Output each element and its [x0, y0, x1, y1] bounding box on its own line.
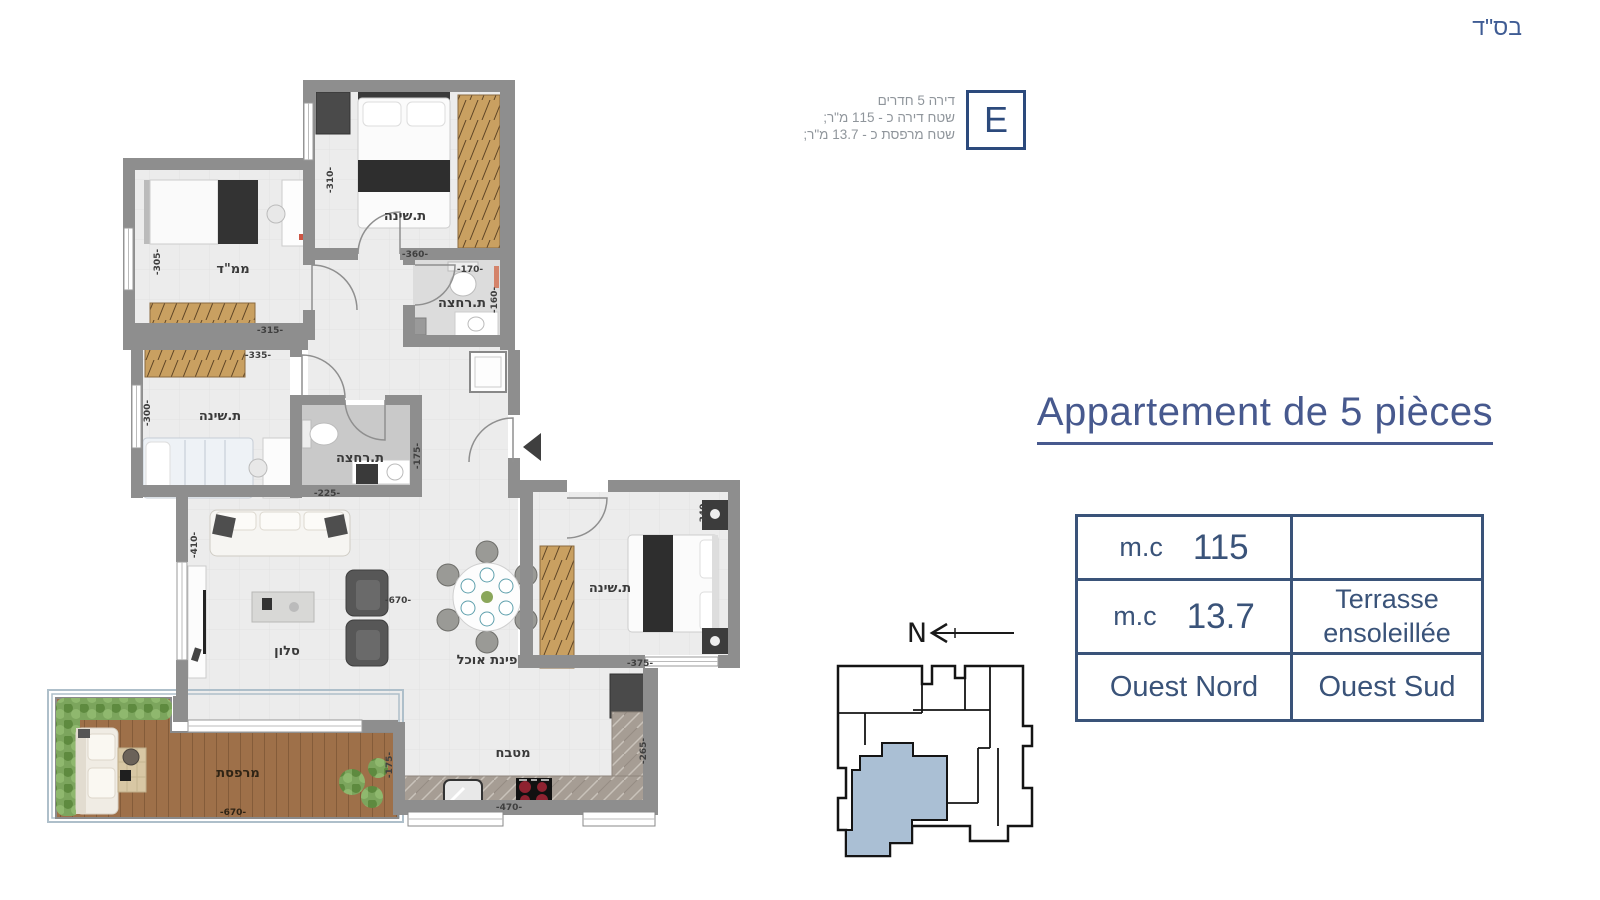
highlighted-unit	[846, 743, 947, 856]
dresser	[316, 92, 350, 134]
building-outline	[838, 666, 1032, 856]
spec-cell-empty	[1293, 517, 1481, 581]
spec-cell-orientation-right: Ouest Sud	[1293, 655, 1481, 719]
dim-170: -170-	[457, 265, 484, 275]
spec-cell-terrace-label: Terrasse ensoleillée	[1293, 581, 1481, 655]
unit-info-block: דירה 5 חדרים שטח דירה כ - 115 מ"ר; שטח מ…	[640, 92, 955, 143]
dim-265: -265-	[639, 738, 649, 765]
dim-670-terrace: -670-	[220, 808, 247, 818]
room-label-living: סלון	[274, 644, 300, 659]
room-label-terrace: מרפסת	[216, 766, 260, 781]
terrace-plant	[339, 769, 365, 795]
dim-410: -410-	[190, 532, 200, 559]
dim-305: -305-	[153, 249, 163, 276]
wardrobe-top-bedroom	[458, 95, 500, 248]
entrance-arrow-icon	[523, 433, 541, 461]
sofa	[210, 510, 350, 556]
dim-160: -160-	[490, 287, 500, 314]
dim-470: -470-	[496, 803, 523, 813]
dim-225: -225-	[314, 489, 341, 499]
dim-175-terrace: -175-	[385, 752, 395, 779]
dim-340: -340-	[699, 500, 709, 527]
room-label-mamad: ממ"ד	[216, 262, 249, 277]
tv-unit	[188, 566, 206, 678]
north-compass: N	[907, 618, 1014, 649]
unit-info-line: דירה 5 חדרים	[640, 92, 955, 109]
outdoor-rug-table	[118, 748, 146, 792]
dim-375: -375-	[627, 659, 654, 669]
spec-cell-area: m.c 115	[1078, 517, 1293, 581]
dim-335: -335-	[245, 351, 272, 361]
room-label-master: ת.שינה	[589, 581, 631, 596]
terrace-plant	[361, 786, 383, 808]
unit-letter-badge: E	[966, 90, 1026, 150]
room-label-bath2: ת.רחצה	[336, 451, 384, 466]
page-title: Appartement de 5 pièces	[1000, 390, 1530, 445]
bed-mamad	[144, 180, 258, 244]
dim-670-living: -670-	[385, 596, 412, 606]
spec-table: m.c 115 m.c 13.7 Terrasse ensoleillée Ou…	[1075, 514, 1484, 722]
unit-info-line: שטח מרפסת כ - 13.7 מ"ר;	[640, 126, 955, 143]
room-label-bedroom-top: ת.שינה	[384, 209, 426, 224]
bsd-text: בס"ד	[1472, 14, 1522, 41]
wardrobe-master	[540, 546, 574, 668]
dim-300: -300-	[143, 400, 153, 427]
spec-cell-orientation-left: Ouest Nord	[1078, 655, 1293, 719]
spec-terrace-value: 13.7	[1187, 597, 1255, 637]
dim-310: -310-	[326, 167, 336, 194]
fridge	[610, 674, 644, 718]
dim-175-bath: -175-	[413, 443, 423, 470]
room-label-bath1: ת.רחצה	[438, 296, 486, 311]
coffee-table	[252, 592, 314, 622]
spec-area-value: 115	[1193, 528, 1249, 568]
unit-info-line: שטח דירה כ - 115 מ"ר;	[640, 109, 955, 126]
wardrobe-bedroom2	[145, 348, 245, 377]
unit-letter: E	[984, 99, 1008, 141]
dim-360: -360-	[402, 250, 429, 260]
room-label-dining: פינת אוכל	[457, 653, 518, 668]
key-plan: N	[820, 598, 1040, 862]
floorplan-sheet: { "meta": { "bsd": "בס\"ד" }, "unit_info…	[0, 0, 1600, 900]
dim-315: -315-	[257, 326, 284, 336]
spec-unit-label: m.c	[1119, 532, 1163, 563]
outdoor-sofa	[76, 728, 118, 814]
room-label-kitchen: מטבח	[495, 746, 530, 761]
spec-unit-label: m.c	[1113, 601, 1157, 632]
spec-cell-terrace-area: m.c 13.7	[1078, 581, 1293, 655]
shower-hall	[470, 352, 506, 392]
bed-top-bedroom	[358, 92, 450, 228]
room-label-bedroom2: ת.שינה	[199, 409, 241, 424]
north-label: N	[907, 618, 927, 649]
